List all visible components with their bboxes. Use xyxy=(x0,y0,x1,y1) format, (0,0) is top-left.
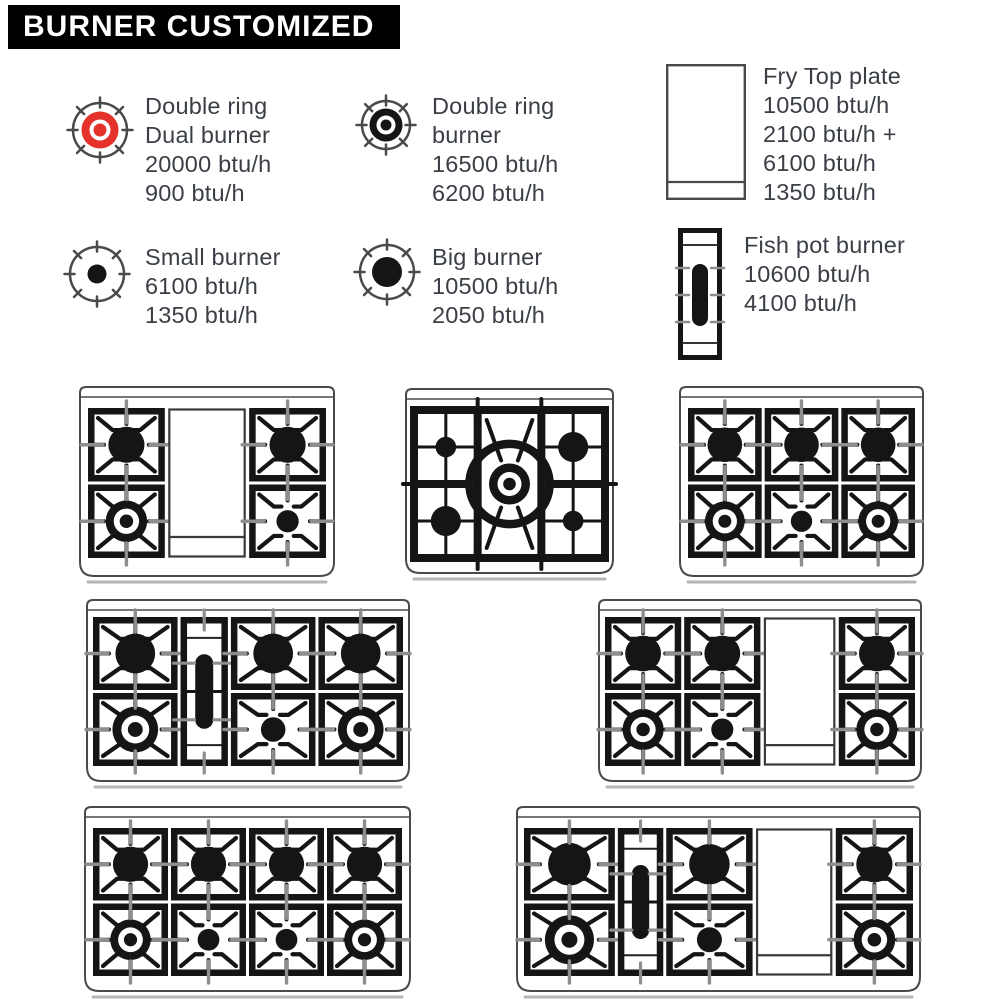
legend-line: 6100 btu/h xyxy=(763,149,901,178)
small-burner-glyph xyxy=(697,927,722,952)
burner-cell-big xyxy=(517,821,622,908)
big-burner-icon xyxy=(356,241,418,303)
fish-pot-burner-cell xyxy=(611,821,670,983)
cooktop-8-burner xyxy=(83,805,412,1000)
burner-cell-big xyxy=(659,821,759,908)
big-burner-glyph xyxy=(625,636,661,672)
burner-cell-ring xyxy=(517,897,622,984)
small-burner-glyph xyxy=(261,717,286,742)
fish-pot-burner-cell xyxy=(174,610,235,773)
burner-cell-big xyxy=(164,821,253,908)
cooktop-6-burner xyxy=(678,385,925,586)
fry-top-plate-cell xyxy=(757,830,831,975)
burner-cell-small xyxy=(224,686,323,773)
burner-cell-big xyxy=(81,401,172,489)
legend-line: Dual burner xyxy=(145,121,271,150)
big-burner-glyph xyxy=(558,432,588,462)
small-burner-icon xyxy=(66,243,128,305)
page: BURNER CUSTOMIZED Double ringDual burner… xyxy=(0,0,1000,1000)
cooktop-6-burner-fish-pot-fry-top xyxy=(515,805,922,1000)
legend-line: Big burner xyxy=(432,243,558,272)
legend-line: Fry Top plate xyxy=(763,62,901,91)
burner-cell-big xyxy=(242,401,333,489)
ring-burner-glyph xyxy=(344,920,385,961)
legend-item-text: Big burner10500 btu/h2050 btu/h xyxy=(432,243,558,330)
burner-cell-ring xyxy=(598,686,688,773)
dual-ring-red-icon xyxy=(64,94,136,166)
big-burner-glyph xyxy=(784,427,819,462)
burner-cell-big xyxy=(86,821,175,908)
small-burner-glyph xyxy=(791,511,812,532)
fry-top-icon xyxy=(666,64,746,200)
big-burner-glyph xyxy=(431,506,461,536)
legend-line: Double ring xyxy=(432,92,558,121)
legend-line: 1350 btu/h xyxy=(763,178,901,207)
legend-line: 10600 btu/h xyxy=(744,260,905,289)
burner-cell-ring xyxy=(86,897,175,984)
big-burner-glyph xyxy=(548,843,591,886)
big-burner-glyph xyxy=(253,634,293,674)
legend-line: 10500 btu/h xyxy=(763,91,901,120)
dual-ring-burner-glyph xyxy=(489,464,530,505)
legend-line: 6200 btu/h xyxy=(432,179,558,208)
burner-cell-ring xyxy=(681,478,769,566)
small-burner-glyph xyxy=(563,511,584,532)
legend-line: 16500 btu/h xyxy=(432,150,558,179)
burner-cell-big xyxy=(224,610,323,697)
small-burner-glyph xyxy=(276,510,298,532)
ring-burner-glyph xyxy=(705,501,745,541)
cooktop-6-burner-fry-top xyxy=(597,598,923,791)
cooktop-8-burner-fish-pot xyxy=(85,598,411,791)
big-burner-glyph xyxy=(341,634,381,674)
burner-cell-big xyxy=(86,610,185,697)
burner-cell-big xyxy=(242,821,331,908)
big-burner-glyph xyxy=(708,427,743,462)
fry-top-plate-cell xyxy=(169,410,244,557)
fish-pot-icon xyxy=(678,228,722,360)
legend-item-text: Double ringburner16500 btu/h6200 btu/h xyxy=(432,92,558,208)
ring-burner-glyph xyxy=(858,501,898,541)
fry-top-plate-cell xyxy=(765,619,834,765)
burner-cell-ring xyxy=(832,686,922,773)
burner-cell-big xyxy=(320,821,409,908)
ring-burner-glyph xyxy=(112,707,158,753)
burner-cell-small xyxy=(677,686,767,773)
big-burner-glyph xyxy=(113,847,148,882)
dual-burner-grid xyxy=(410,406,609,562)
small-burner-glyph xyxy=(711,718,733,740)
big-burner-glyph xyxy=(861,427,896,462)
legend-item-text: Fry Top plate10500 btu/h2100 btu/h +6100… xyxy=(763,62,901,207)
burner-cell-big xyxy=(311,610,410,697)
burner-cell-ring xyxy=(81,478,172,566)
big-burner-glyph xyxy=(704,636,740,672)
big-burner-glyph xyxy=(115,634,155,674)
legend-line: 2050 btu/h xyxy=(432,301,558,330)
big-burner-glyph xyxy=(191,847,226,882)
burner-cell-ring xyxy=(829,897,920,984)
big-burner-glyph xyxy=(270,427,306,463)
ring-burner-glyph xyxy=(856,709,897,750)
legend-line: 900 btu/h xyxy=(145,179,271,208)
burner-cell-small xyxy=(164,897,253,984)
legend-line: Fish pot burner xyxy=(744,231,905,260)
burner-cell-big xyxy=(832,610,922,697)
burner-cell-big xyxy=(677,610,767,697)
burner-cell-small xyxy=(242,478,333,566)
legend-line: 1350 btu/h xyxy=(145,301,281,330)
burner-cell-small xyxy=(659,897,759,984)
big-burner-glyph xyxy=(859,636,895,672)
legend-line: burner xyxy=(432,121,558,150)
burner-cell-big xyxy=(598,610,688,697)
burner-cell-ring xyxy=(320,897,409,984)
ring-burner-glyph xyxy=(623,709,664,750)
burner-cell-small xyxy=(758,478,846,566)
ring-burner-glyph xyxy=(545,915,594,964)
big-burner-glyph xyxy=(347,847,382,882)
small-burner-glyph xyxy=(276,929,298,951)
small-burner-glyph xyxy=(436,437,457,458)
big-burner-glyph xyxy=(689,844,730,885)
burner-cell-big xyxy=(834,401,922,489)
legend-item-text: Small burner6100 btu/h1350 btu/h xyxy=(145,243,281,330)
legend-item-text: Fish pot burner10600 btu/h4100 btu/h xyxy=(744,231,905,318)
ring-burner-glyph xyxy=(110,920,151,961)
legend-line: 20000 btu/h xyxy=(145,150,271,179)
legend-line: Small burner xyxy=(145,243,281,272)
burner-cell-small xyxy=(242,897,331,984)
big-burner-glyph xyxy=(269,847,304,882)
ring-burner-glyph xyxy=(854,919,896,961)
small-burner-glyph xyxy=(198,929,220,951)
legend-line: 4100 btu/h xyxy=(744,289,905,318)
cooktop-5-burner-dual-center xyxy=(404,387,615,583)
big-burner-glyph xyxy=(108,427,144,463)
burner-cell-ring xyxy=(311,686,410,773)
burner-cell-ring xyxy=(834,478,922,566)
ring-burner-glyph xyxy=(106,501,147,542)
burner-cell-big xyxy=(758,401,846,489)
ring-burner-glyph xyxy=(338,707,384,753)
burner-cell-big xyxy=(829,821,920,908)
legend-line: 6100 btu/h xyxy=(145,272,281,301)
legend-line: 2100 btu/h + xyxy=(763,120,901,149)
big-burner-glyph xyxy=(856,846,892,882)
title-banner: BURNER CUSTOMIZED xyxy=(8,5,400,49)
legend-item-text: Double ringDual burner20000 btu/h900 btu… xyxy=(145,92,271,208)
cooktop-4-burner-fry-top xyxy=(78,385,336,586)
legend-line: Double ring xyxy=(145,92,271,121)
burner-cell-big xyxy=(681,401,769,489)
double-ring-icon xyxy=(358,97,414,153)
legend-line: 10500 btu/h xyxy=(432,272,558,301)
burner-cell-ring xyxy=(86,686,185,773)
